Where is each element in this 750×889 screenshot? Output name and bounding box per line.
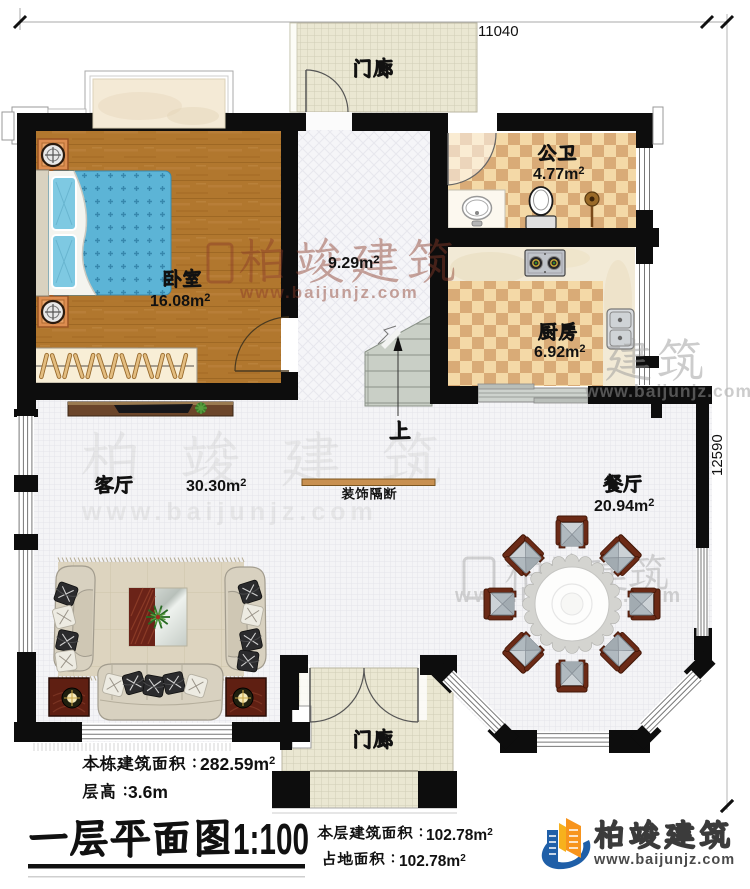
svg-text:16.08m2: 16.08m2 <box>150 292 210 310</box>
svg-text:6.92m2: 6.92m2 <box>534 343 586 361</box>
svg-text:4.77m2: 4.77m2 <box>533 165 585 183</box>
svg-text:102.78m2: 102.78m2 <box>426 827 493 844</box>
svg-text:www.baijunjz.com: www.baijunjz.com <box>584 381 750 401</box>
svg-text:282.59m2: 282.59m2 <box>200 754 275 774</box>
svg-text:102.78m2: 102.78m2 <box>399 853 466 870</box>
svg-text:www.baijunjz.com: www.baijunjz.com <box>239 283 419 302</box>
svg-text:20.94m2: 20.94m2 <box>594 497 654 515</box>
svg-text:12590: 12590 <box>709 434 726 476</box>
svg-text:www.baijunjz.com: www.baijunjz.com <box>593 852 735 868</box>
svg-text:30.30m2: 30.30m2 <box>186 477 246 495</box>
svg-text:3.6m: 3.6m <box>128 782 168 802</box>
svg-text:www.baijunjz.com: www.baijunjz.com <box>81 498 378 526</box>
svg-text:1:100: 1:100 <box>233 815 309 864</box>
svg-text:9.29m2: 9.29m2 <box>328 254 380 272</box>
svg-text:11040: 11040 <box>478 23 519 40</box>
